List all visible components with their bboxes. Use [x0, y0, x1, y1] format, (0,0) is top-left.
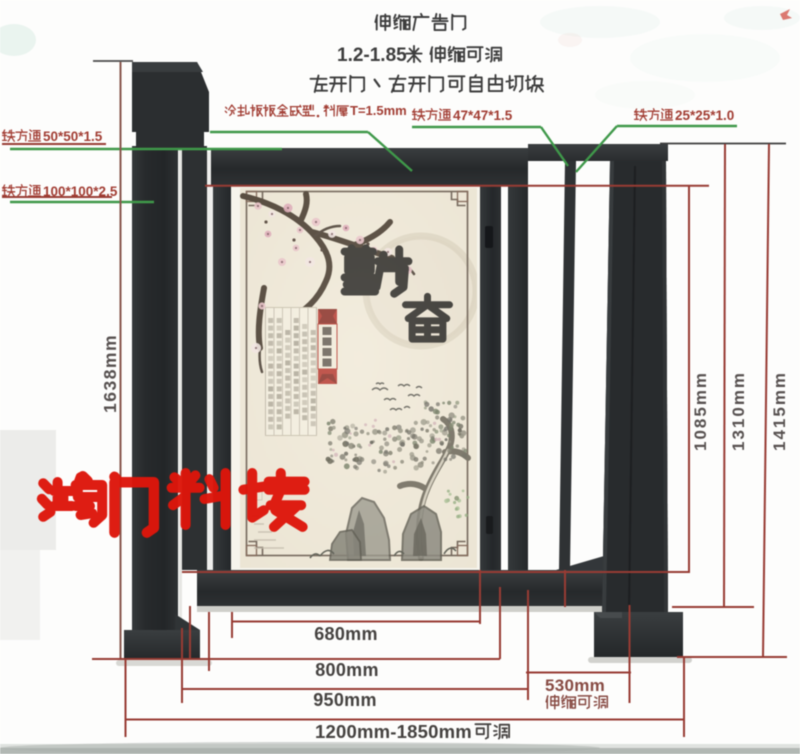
svg-text:1638mm: 1638mm [100, 334, 120, 413]
svg-text:680mm: 680mm [314, 624, 378, 644]
svg-text:50*50*1.5: 50*50*1.5 [43, 129, 103, 144]
svg-text:25*25*1.0: 25*25*1.0 [675, 108, 734, 123]
svg-text:1.2-1.85: 1.2-1.85 [337, 45, 407, 66]
svg-text:1310mm: 1310mm [729, 371, 748, 451]
svg-text:1085mm: 1085mm [691, 371, 710, 451]
svg-text:47*47*1.5: 47*47*1.5 [453, 108, 513, 123]
svg-text:T=1.5mm: T=1.5mm [350, 103, 407, 118]
svg-text:100*100*2.5: 100*100*2.5 [43, 184, 118, 199]
svg-text:800mm: 800mm [315, 660, 379, 680]
svg-text:1415mm: 1415mm [770, 371, 789, 451]
svg-text:950mm: 950mm [313, 690, 377, 710]
svg-text:530mm: 530mm [545, 676, 605, 695]
svg-text:1200mm-1850mm: 1200mm-1850mm [315, 721, 472, 742]
